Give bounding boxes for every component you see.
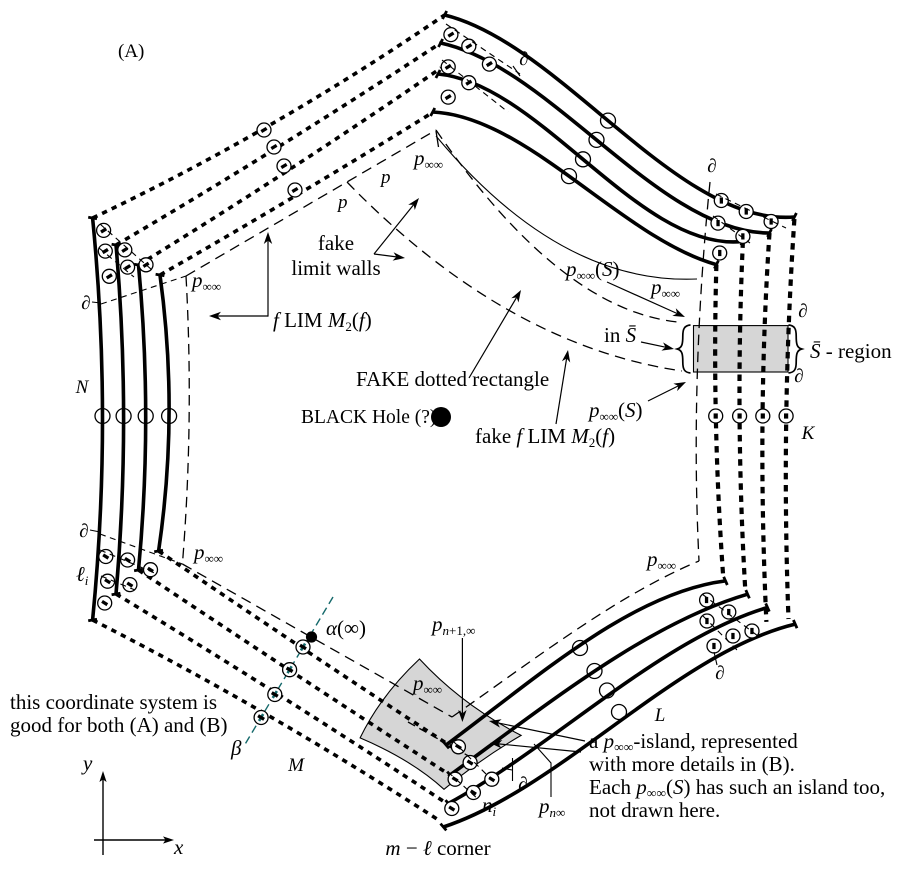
svg-text:L: L: [654, 705, 666, 726]
svg-text:this coordinate system is: this coordinate system is: [10, 690, 217, 714]
svg-text:with more details in (B).: with more details in (B).: [589, 752, 795, 776]
svg-text:α(∞): α(∞): [326, 616, 366, 640]
svg-text:∂: ∂: [518, 774, 527, 795]
svg-text:BLACK Hole (?): BLACK Hole (?): [301, 407, 436, 428]
svg-text:m − ℓ corner: m − ℓ corner: [385, 836, 490, 860]
svg-text:∂: ∂: [715, 663, 724, 684]
svg-text:in S̄: in S̄: [604, 323, 637, 347]
svg-text:good for both (A) and (B): good for both (A) and (B): [10, 713, 228, 737]
svg-text:(A): (A): [118, 41, 144, 62]
svg-text:y: y: [81, 751, 93, 775]
svg-text:∂: ∂: [798, 301, 807, 322]
svg-text:x: x: [173, 835, 184, 859]
svg-text:∂: ∂: [794, 366, 803, 387]
svg-text:∂: ∂: [519, 49, 528, 70]
svg-text:S̄ - region: S̄ - region: [810, 339, 892, 363]
svg-text:∂: ∂: [79, 521, 88, 542]
svg-text:p: p: [379, 167, 391, 188]
svg-text:limit walls: limit walls: [291, 256, 380, 280]
svg-text:M: M: [287, 755, 305, 776]
svg-text:∂: ∂: [81, 293, 90, 314]
svg-text:N: N: [75, 377, 90, 398]
svg-text:β: β: [230, 736, 242, 760]
svg-text:∂: ∂: [707, 156, 716, 177]
svg-text:f LIM M2(f): f LIM M2(f): [273, 308, 372, 334]
svg-text:Each p∞∞(S) has such an island: Each p∞∞(S) has such an island too,: [589, 775, 885, 801]
svg-text:p: p: [336, 192, 348, 213]
svg-text:K: K: [801, 423, 816, 444]
svg-text:fake: fake: [318, 231, 354, 255]
svg-text:not drawn here.: not drawn here.: [589, 798, 720, 822]
svg-text:FAKE dotted rectangle: FAKE dotted rectangle: [356, 367, 549, 391]
